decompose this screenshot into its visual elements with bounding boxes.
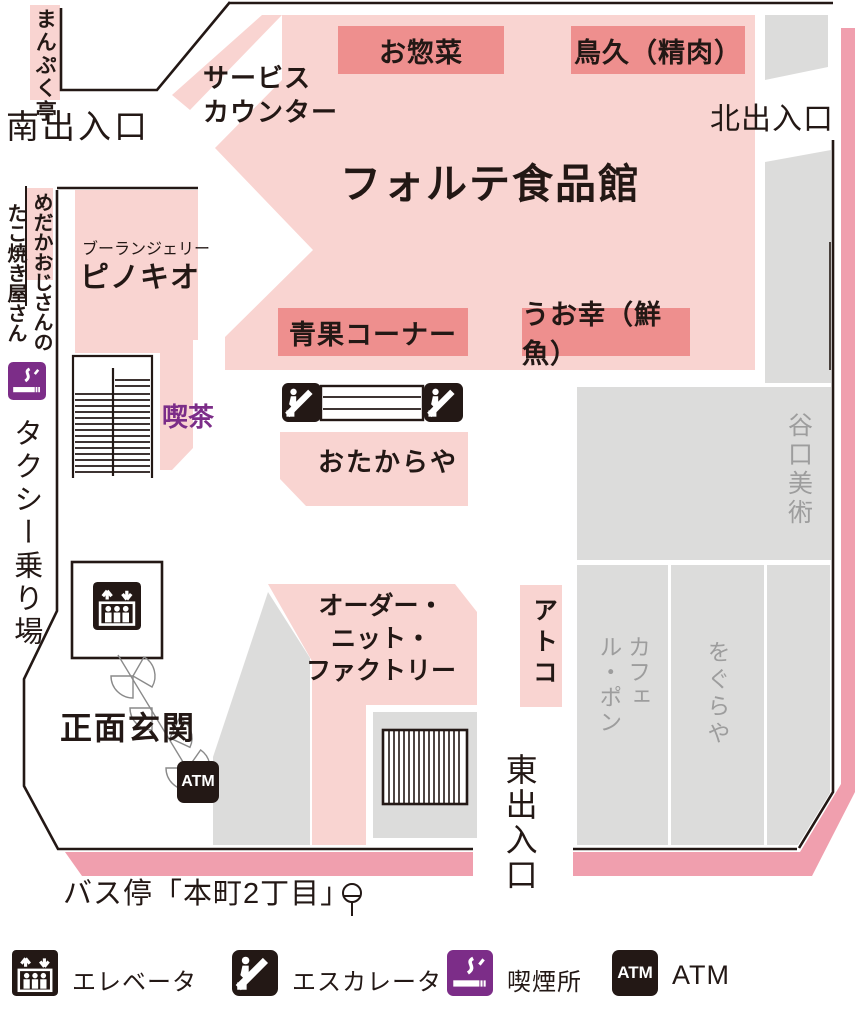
atm-icon: ATM	[177, 761, 219, 803]
taniguchi-upper-area	[765, 150, 831, 383]
legend-smoking-label: 喫煙所	[507, 962, 582, 997]
escalator-icon	[424, 383, 463, 422]
south-entrance-label: 南出入口	[6, 106, 150, 149]
bus-stop-label: バス停「本町2丁目」	[63, 876, 350, 914]
legend-atm-label: ATM	[672, 960, 730, 991]
legend-elevator-icon	[12, 950, 58, 996]
oguraya-label: をぐらや	[701, 640, 731, 748]
legend-elevator-label: エレベータ	[72, 962, 197, 997]
dept-torikyu-label: 鳥久（精肉）	[571, 26, 745, 74]
east-entrance-label: 東出入口	[498, 753, 540, 893]
service-counter-label: サービス カウンター	[203, 62, 338, 130]
legend-atm-icon: ATM	[612, 950, 658, 996]
atoko-label: アトコ	[527, 597, 560, 690]
kissa-label: 喫茶	[162, 401, 214, 435]
building-title: フォルテ食品館	[340, 158, 641, 211]
floor-map: お惣菜 鳥久（精肉） 青果コーナー うお幸（鮮魚） フォルテ食品館 まんぷく亭 …	[0, 0, 855, 1012]
escalator-lanes	[321, 386, 423, 420]
cafe-le-pon-label: カフェ ル・ポン	[594, 635, 652, 735]
stairs-glyph	[73, 356, 152, 478]
dept-souzai-label: お惣菜	[338, 26, 504, 74]
takoyaki-shop-label: たこ焼き屋さん	[2, 203, 28, 343]
main-entrance-label: 正面玄関	[60, 708, 196, 750]
taxi-stand-label: タクシー乗り場	[6, 418, 44, 649]
pinokio-subtitle: ブーランジェリー	[82, 240, 210, 261]
legend-escalator-label: エスカレータ	[292, 962, 442, 997]
smoking-icon	[8, 362, 46, 400]
north-entrance-label: 北出入口	[710, 100, 834, 139]
pinokio-label: ピノキオ	[80, 260, 200, 298]
order-knit-label: オーダー・ ニット・ ファクトリー	[296, 590, 466, 688]
takoyaki-owner-label: めだかおじさんの	[28, 192, 54, 352]
dept-seika-label: 青果コーナー	[278, 308, 468, 356]
map-shapes	[0, 0, 855, 1012]
otakaraya-label: おたからや	[318, 446, 458, 480]
shutter-glyph	[383, 730, 467, 804]
dept-uokou-label: うお幸（鮮魚）	[522, 308, 690, 356]
escalator-icon	[282, 383, 321, 422]
legend-smoking-icon	[447, 950, 493, 996]
elevator-icon	[93, 582, 141, 630]
taniguchi-label: 谷口美術	[782, 412, 815, 528]
legend-escalator-icon	[232, 950, 278, 996]
